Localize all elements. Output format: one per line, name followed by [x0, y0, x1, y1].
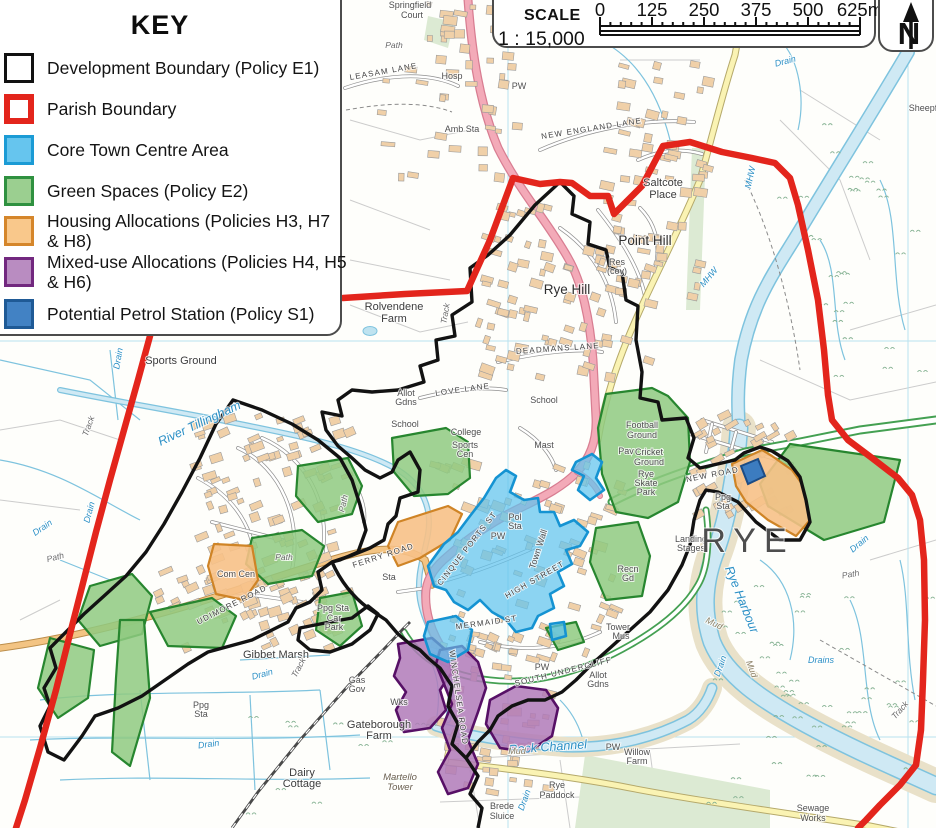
legend-swatch: [4, 135, 34, 165]
map-label: Paddock: [539, 790, 575, 800]
map-label: Point Hill: [618, 233, 671, 248]
map-label: Drains: [808, 655, 835, 665]
north-arrowhead: [903, 2, 919, 22]
map-label: Cottage: [283, 778, 322, 790]
map-label: Tower: [387, 782, 413, 793]
legend-item-1: Parish Boundary: [4, 93, 347, 125]
map-label: School: [391, 419, 419, 429]
map-label: RYE: [701, 522, 794, 560]
map-label: Mus: [612, 631, 630, 641]
map-label: (cov): [607, 266, 627, 276]
map-label: Ppg Sta: [317, 603, 349, 613]
legend-item-label: Parish Boundary: [47, 99, 347, 119]
legend-swatch: [4, 299, 34, 329]
map-label: PW: [606, 742, 621, 752]
map-label: Ground: [634, 457, 664, 467]
scale-ratio: 1 : 15,000: [498, 28, 585, 51]
legend-item-3: Green Spaces (Policy E2): [4, 175, 347, 207]
scale-bar: 0125250375500625m: [594, 0, 878, 50]
map-label: Wks: [390, 697, 408, 707]
map-label: Sluice: [490, 811, 515, 821]
legend-item-4: Housing Allocations (Policies H3, H7 & H…: [4, 215, 347, 247]
map-label: Sta: [382, 572, 396, 582]
map-label: PW: [491, 531, 506, 541]
map-label: Ground: [627, 430, 657, 440]
legend-swatch: [4, 257, 34, 287]
map-label: Sewage: [797, 803, 830, 813]
map-label: Saltcote: [643, 177, 683, 189]
map-label: Gov: [349, 684, 366, 694]
map-label: Com Cen: [217, 569, 255, 579]
map-label: Springfield: [389, 0, 432, 10]
legend-item-0: Development Boundary (Policy E1): [4, 52, 347, 84]
map-label: Mast: [534, 440, 554, 450]
map-label: Pav: [618, 446, 634, 456]
map-label: College: [451, 427, 482, 437]
map-label: Farm: [366, 730, 392, 742]
legend-item-5: Mixed-use Allocations (Policies H4, H5 &…: [4, 256, 347, 288]
map-label: Rye: [549, 780, 565, 790]
map-label: Sheepfold: [909, 103, 936, 113]
map-label: Park: [637, 487, 656, 497]
map-label: Brede: [490, 801, 514, 811]
north-arrow: N: [880, 0, 931, 49]
map-label: Gd: [622, 573, 634, 583]
map-label: PW: [512, 81, 527, 91]
map-label: Path: [275, 552, 293, 562]
map-label: Football: [626, 420, 658, 430]
scale-tick-label: 625m: [837, 0, 878, 20]
map-label: Amb Sta: [445, 124, 480, 134]
legend-panel: KEY Development Boundary (Policy E1)Pari…: [0, 0, 342, 336]
legend-item-label: Mixed-use Allocations (Policies H4, H5 &…: [47, 252, 347, 292]
map-label: Cen: [457, 449, 474, 459]
map-label: Court: [401, 10, 424, 20]
map-label: Sta: [194, 709, 208, 719]
map-label: Gdns: [587, 679, 609, 689]
legend-swatch: [4, 176, 34, 206]
legend-swatch: [4, 216, 34, 246]
legend-swatch: [4, 53, 34, 83]
legend-title: KEY: [0, 10, 340, 41]
map-label: PW: [535, 662, 550, 672]
map-label: Farm: [627, 756, 648, 766]
map-label: Hosp: [441, 71, 462, 81]
legend-item-label: Housing Allocations (Policies H3, H7 & H…: [47, 211, 347, 251]
map-label: Sta: [508, 521, 522, 531]
map-label: Mud: [508, 746, 527, 756]
map-label: Park: [325, 622, 344, 632]
map-label: Cricket: [635, 447, 664, 457]
map-label: Sta: [716, 501, 730, 511]
legend-swatch: [4, 94, 34, 124]
map-label: Place: [649, 189, 677, 201]
map-label: Farm: [381, 313, 407, 325]
neighbourhood-policies-map: SpringfieldCourtPathLEASAM LANEHospPWAmb…: [0, 0, 936, 828]
legend-item-label: Core Town Centre Area: [47, 140, 347, 160]
page: { "legend": { "title": "KEY", "items": […: [0, 0, 936, 828]
map-label: Works: [800, 813, 826, 823]
map-label: Gdns: [395, 397, 417, 407]
map-label: Path: [385, 40, 403, 50]
map-label: Rye Hill: [544, 282, 591, 297]
map-label: School: [530, 395, 558, 405]
legend-item-label: Green Spaces (Policy E2): [47, 181, 347, 201]
map-label: Sports Ground: [145, 355, 217, 367]
legend-item-2: Core Town Centre Area: [4, 134, 347, 166]
legend-item-label: Potential Petrol Station (Policy S1): [47, 304, 347, 324]
north-arrow-panel: N: [878, 0, 934, 52]
scale-label: SCALE: [524, 7, 581, 25]
legend-item-6: Potential Petrol Station (Policy S1): [4, 298, 347, 330]
map-label: Rolvendene: [365, 301, 424, 313]
legend-item-label: Development Boundary (Policy E1): [47, 58, 347, 78]
scale-panel: SCALE 1 : 15,000 0125250375500625m: [492, 0, 876, 48]
